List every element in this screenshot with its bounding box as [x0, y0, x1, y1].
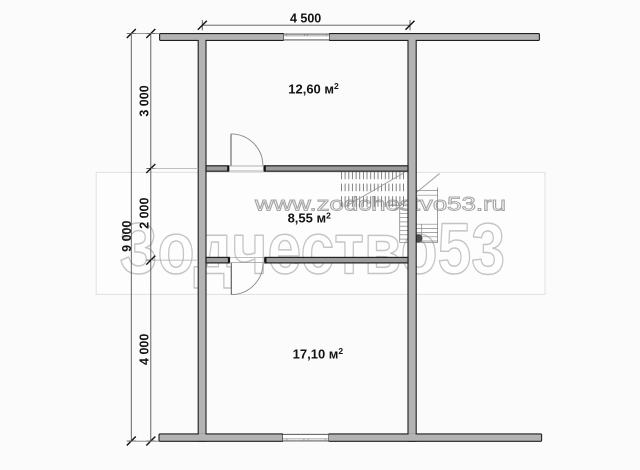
svg-text:17,10 м2: 17,10 м2 [293, 346, 344, 361]
svg-text:9 000: 9 000 [120, 221, 134, 252]
svg-text:2 000: 2 000 [138, 198, 152, 229]
svg-text:8,55 м2: 8,55 м2 [288, 210, 332, 225]
svg-text:3 000: 3 000 [138, 85, 152, 116]
svg-text:12,60 м2: 12,60 м2 [288, 81, 339, 96]
svg-text:4 500: 4 500 [290, 11, 321, 25]
svg-text:4 000: 4 000 [138, 334, 152, 365]
